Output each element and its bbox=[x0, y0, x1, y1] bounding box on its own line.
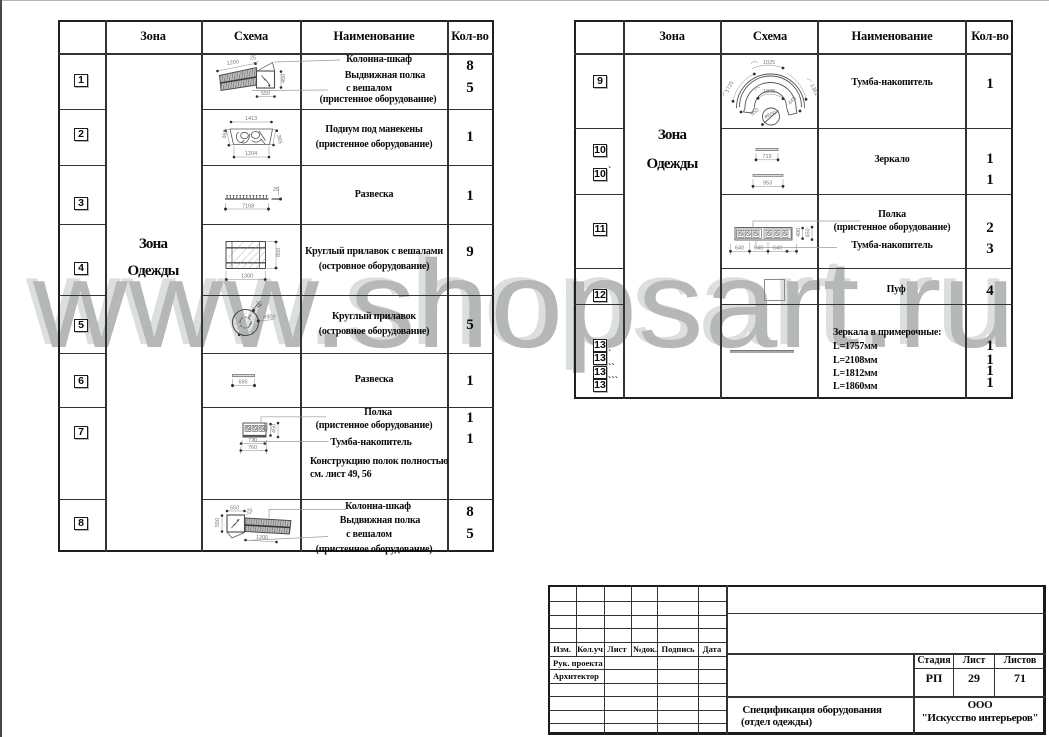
svg-text:7168: 7168 bbox=[242, 204, 254, 210]
svg-text:640: 640 bbox=[754, 246, 763, 252]
svg-text:25: 25 bbox=[247, 509, 253, 515]
svg-text:550: 550 bbox=[215, 518, 221, 527]
svg-text:1300: 1300 bbox=[241, 274, 253, 280]
svg-text:640: 640 bbox=[773, 246, 782, 252]
svg-text:640: 640 bbox=[735, 246, 744, 252]
svg-text:1025: 1025 bbox=[763, 60, 775, 66]
svg-text:760: 760 bbox=[248, 445, 257, 451]
svg-text:365: 365 bbox=[275, 134, 283, 144]
svg-text:1413: 1413 bbox=[245, 116, 257, 122]
svg-text:25: 25 bbox=[256, 301, 262, 307]
svg-text:ø900: ø900 bbox=[263, 315, 276, 321]
svg-text:450: 450 bbox=[806, 228, 812, 237]
svg-text:953: 953 bbox=[763, 180, 772, 186]
svg-text:400: 400 bbox=[796, 228, 802, 237]
svg-text:550: 550 bbox=[230, 506, 239, 512]
svg-text:550: 550 bbox=[261, 91, 270, 97]
svg-text:720: 720 bbox=[248, 438, 257, 444]
svg-text:25: 25 bbox=[250, 56, 256, 62]
svg-text:25: 25 bbox=[273, 187, 279, 193]
svg-text:695: 695 bbox=[239, 380, 248, 386]
svg-text:715: 715 bbox=[763, 154, 772, 160]
svg-text:400: 400 bbox=[264, 423, 270, 432]
svg-text:1808: 1808 bbox=[763, 89, 775, 95]
svg-text:1725: 1725 bbox=[724, 80, 735, 94]
svg-text:445: 445 bbox=[787, 96, 798, 107]
svg-text:1361: 1361 bbox=[808, 83, 819, 97]
svg-text:450: 450 bbox=[281, 74, 287, 83]
svg-text:1200: 1200 bbox=[226, 59, 239, 67]
svg-text:850: 850 bbox=[276, 248, 282, 257]
svg-text:ø600: ø600 bbox=[764, 110, 778, 120]
svg-text:1204: 1204 bbox=[245, 151, 257, 157]
svg-text:550: 550 bbox=[750, 107, 761, 117]
svg-text:450: 450 bbox=[272, 424, 278, 433]
